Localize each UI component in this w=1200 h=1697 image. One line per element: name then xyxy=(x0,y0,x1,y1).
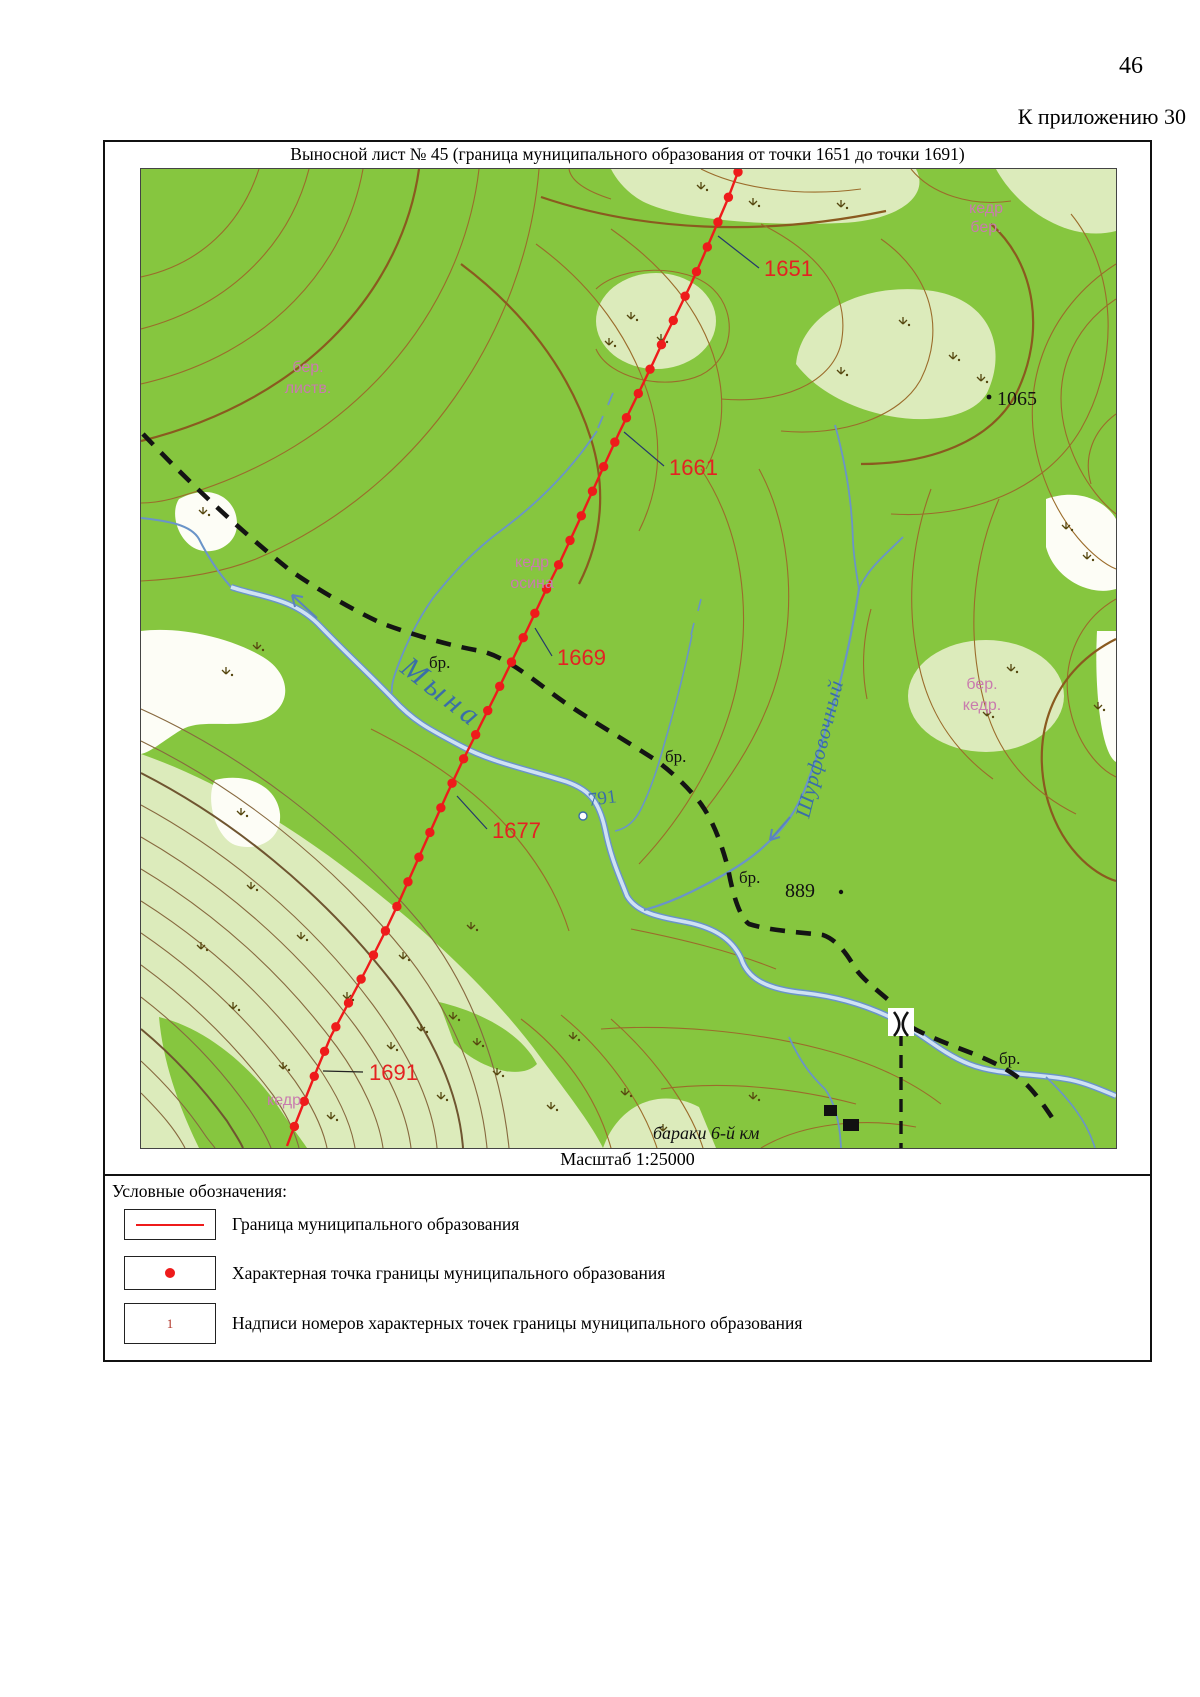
ford-label-2: бр. xyxy=(665,747,686,766)
veg-label-center-2: осина xyxy=(510,575,554,592)
veg-label-top-right-2: бер. xyxy=(970,219,1001,236)
point-label-1651: 1651 xyxy=(764,256,813,281)
elevation-dot-889 xyxy=(839,890,843,894)
veg-label-bottom-left: кедр xyxy=(267,1092,301,1109)
legend-label-boundary-point: Характерная точка границы муниципального… xyxy=(232,1263,665,1284)
legend-symbol-point-number: 1 xyxy=(124,1303,216,1344)
boundary-point-sample xyxy=(165,1268,175,1278)
document-page: 46 К приложению 30 Выносной лист № 45 (г… xyxy=(0,0,1200,1697)
point-number-sample: 1 xyxy=(167,1316,174,1332)
map-container: 1651 1661 1669 1677 1691 кедр бер. бер. … xyxy=(140,168,1117,1149)
point-label-1677: 1677 xyxy=(492,818,541,843)
veg-label-left-1: бер. xyxy=(292,359,323,376)
point-label-1691: 1691 xyxy=(369,1060,418,1085)
veg-label-right-1: бер. xyxy=(966,676,997,693)
elevation-1065: 1065 xyxy=(997,388,1037,410)
boundary-line-sample xyxy=(136,1224,204,1226)
elevation-dot-1065 xyxy=(987,395,992,400)
appendix-reference: К приложению 30 xyxy=(1018,104,1186,130)
spring-symbol xyxy=(579,812,587,820)
ford-label-3: бр. xyxy=(739,868,760,887)
legend-label-point-number: Надписи номеров характерных точек границ… xyxy=(232,1313,802,1334)
bridge-symbol xyxy=(888,1008,914,1036)
veg-label-left-2: листв. xyxy=(285,380,332,397)
ford-label-4: бр. xyxy=(999,1049,1020,1068)
legend-heading: Условные обозначения: xyxy=(112,1181,287,1202)
water-mark-791: 791 xyxy=(587,786,618,811)
settlement-label: бараки 6-й км xyxy=(653,1123,760,1143)
point-label-1661: 1661 xyxy=(669,455,718,480)
elevation-889: 889 xyxy=(785,880,815,902)
legend-symbol-boundary-line xyxy=(124,1209,216,1240)
page-number: 46 xyxy=(1119,53,1143,80)
topographic-map: 1651 1661 1669 1677 1691 кедр бер. бер. … xyxy=(141,169,1116,1148)
veg-label-top-right-1: кедр xyxy=(969,200,1003,217)
veg-label-center-1: кедр xyxy=(515,554,549,571)
veg-label-right-2: кедр. xyxy=(963,697,1001,714)
legend-separator xyxy=(103,1174,1152,1176)
legend-label-boundary-line: Граница муниципального образования xyxy=(232,1214,519,1235)
point-label-1669: 1669 xyxy=(557,645,606,670)
sheet-title: Выносной лист № 45 (граница муниципально… xyxy=(140,144,1115,165)
map-scale: Масштаб 1:25000 xyxy=(140,1149,1115,1170)
legend-symbol-boundary-point xyxy=(124,1256,216,1290)
